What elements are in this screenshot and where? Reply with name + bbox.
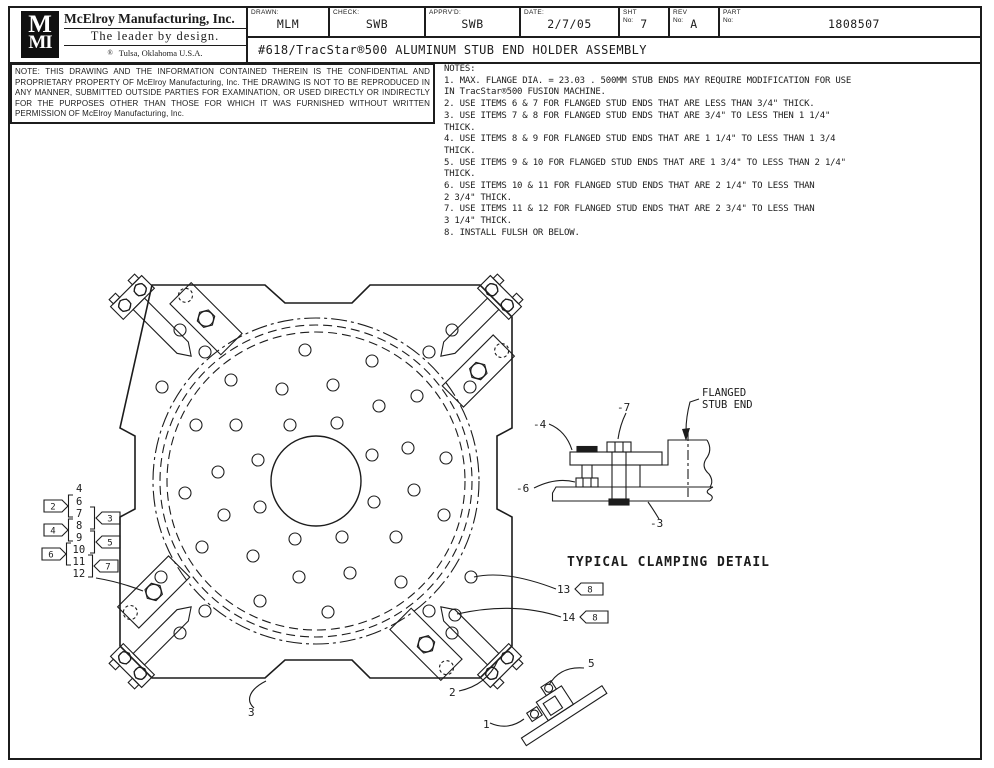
note-flag-6-text: 6 [48, 551, 53, 561]
drawing-sheet: M MI McElroy Manufacturing, Inc. The lea… [0, 0, 994, 768]
note-flag-2-text: 2 [50, 503, 55, 513]
note-flag-6-shape [42, 548, 66, 560]
leader-screw-13 [474, 575, 556, 589]
detail-flange [640, 440, 707, 487]
note-flag-5-text: 5 [107, 539, 112, 549]
stack-item-4: 4 [76, 483, 82, 495]
detail-jack-bolt [576, 447, 598, 488]
center-bore [271, 436, 361, 526]
bracket-detail-view [504, 659, 607, 746]
drawing-canvas: TYPICAL CLAMPING DETAIL FLANGED STUB END… [0, 0, 994, 768]
detail-base-plate [553, 487, 714, 501]
stub-end-holder-plate [85, 250, 547, 713]
leader-flanged-stub-end [686, 399, 699, 431]
corner-clamp-top-left [106, 250, 242, 386]
note-flag-13-text: 8 [587, 586, 592, 596]
leader-screw-14 [457, 608, 561, 617]
item-label-2: 2 [449, 686, 456, 699]
stack-item-9: 9 [76, 532, 82, 544]
flanged-stub-end-label-2: STUB END [702, 399, 753, 411]
item-label-5: 5 [588, 657, 595, 670]
note-flag-4-text: 4 [50, 527, 55, 537]
stack-item-11: 11 [73, 556, 86, 568]
leader-arrowhead [682, 428, 690, 441]
note-flag-7-text: 7 [105, 563, 110, 573]
ref-clamp: -4 [533, 418, 547, 431]
flanged-stub-end-label-1: FLANGED [702, 387, 746, 399]
item-stack-numbers: 4 6 7 8 9 10 11 12 [73, 483, 86, 580]
ref-jack-bolt: -6 [516, 482, 529, 495]
detail-main-bolt [605, 442, 633, 505]
stack-item-12: 12 [73, 568, 86, 580]
note-flag-14-text: 8 [592, 614, 597, 624]
stack-item-10: 10 [73, 544, 86, 556]
stack-item-6: 6 [76, 496, 82, 508]
bolt-circle-centerline [153, 318, 479, 644]
item-label-3: 3 [248, 706, 255, 719]
note-flag-2-shape [44, 500, 68, 512]
leader-bracket [490, 719, 524, 726]
leader-bolt [618, 413, 626, 439]
stack-item-8: 8 [76, 520, 82, 532]
corner-clamp-bottom-left [85, 556, 221, 692]
item-label-14: 14 [562, 611, 576, 624]
clamping-detail-view [534, 399, 713, 519]
drawing-labels: TYPICAL CLAMPING DETAIL FLANGED STUB END… [48, 387, 770, 731]
note-flags [42, 500, 608, 623]
max-flange-circle-outer [160, 325, 472, 637]
leader-plate [250, 681, 266, 708]
detail-title: TYPICAL CLAMPING DETAIL [567, 555, 770, 570]
detail-clamp-bar [570, 452, 662, 465]
leader-clamp [549, 424, 572, 450]
ref-bolt: -7 [617, 401, 630, 414]
note-flag-4-shape [44, 524, 68, 536]
ref-base: -3 [650, 517, 663, 530]
item-label-1: 1 [483, 718, 490, 731]
note-flag-3-text: 3 [107, 515, 112, 525]
bolt-holes [155, 324, 477, 639]
item-label-13: 13 [557, 583, 570, 596]
leader-bracket-screws [549, 668, 584, 685]
max-flange-circle-inner [167, 332, 465, 630]
corner-clamp-bottom-right [390, 577, 526, 713]
stack-item-7: 7 [76, 508, 82, 520]
